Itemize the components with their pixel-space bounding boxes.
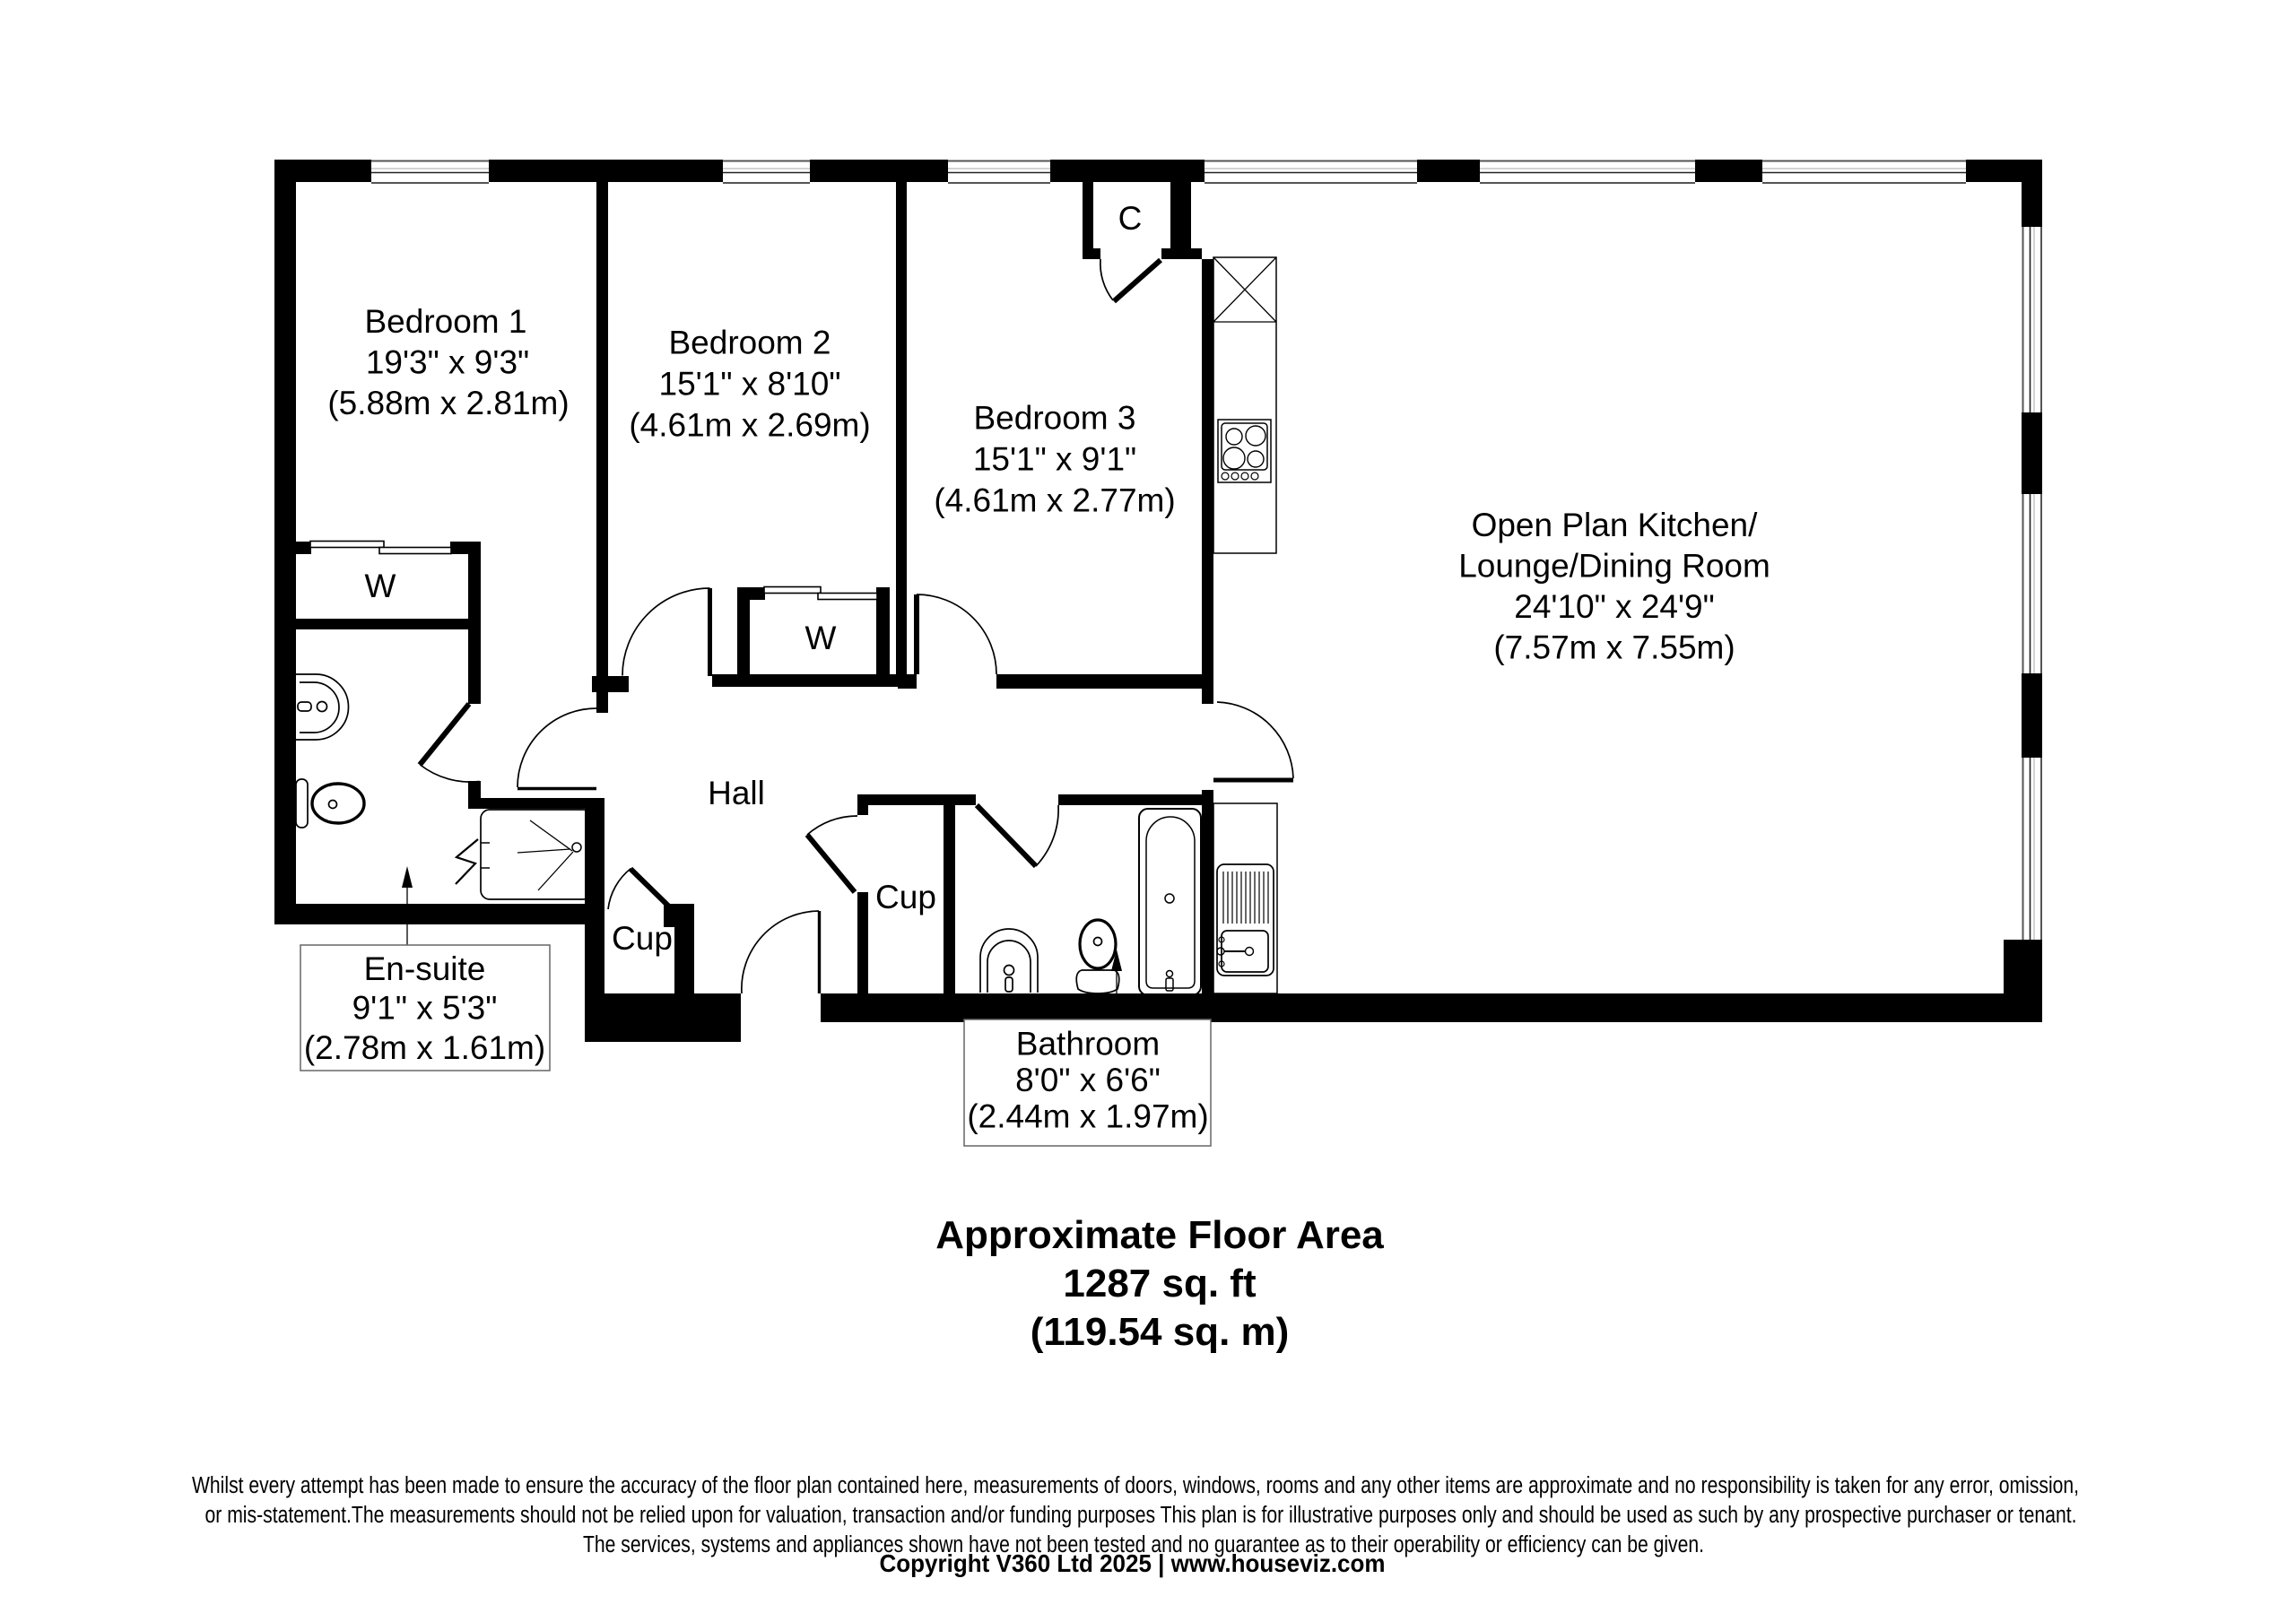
svg-text:15'1" x 9'1": 15'1" x 9'1": [973, 441, 1136, 478]
svg-text:C: C: [1118, 200, 1143, 237]
svg-text:Open Plan Kitchen/: Open Plan Kitchen/: [1472, 507, 1759, 543]
svg-text:or mis-statement.The measureme: or mis-statement.The measurements should…: [205, 1503, 2077, 1528]
svg-text:Whilst every attempt has been: Whilst every attempt has been made to en…: [192, 1473, 2079, 1498]
svg-text:Bedroom 3: Bedroom 3: [974, 400, 1136, 437]
svg-text:9'1" x 5'3": 9'1" x 5'3": [352, 990, 498, 1027]
svg-text:W: W: [805, 620, 837, 656]
svg-text:15'1" x 8'10": 15'1" x 8'10": [659, 366, 841, 403]
svg-text:(7.57m x 7.55m): (7.57m x 7.55m): [1493, 629, 1735, 666]
svg-text:Cup: Cup: [875, 879, 936, 915]
svg-text:Bathroom: Bathroom: [1016, 1026, 1160, 1063]
svg-text:Lounge/Dining Room: Lounge/Dining Room: [1458, 548, 1770, 585]
svg-text:Bedroom 1: Bedroom 1: [365, 303, 527, 340]
svg-text:19'3" x 9'3": 19'3" x 9'3": [366, 344, 529, 381]
svg-text:(4.61m x 2.69m): (4.61m x 2.69m): [629, 407, 870, 444]
svg-text:8'0" x 6'6": 8'0" x 6'6": [1015, 1062, 1161, 1098]
svg-text:(4.61m x 2.77m): (4.61m x 2.77m): [934, 482, 1175, 519]
svg-text:Approximate Floor Area: Approximate Floor Area: [935, 1213, 1384, 1257]
svg-text:1287 sq. ft: 1287 sq. ft: [1063, 1262, 1257, 1305]
svg-text:Cup: Cup: [612, 920, 673, 957]
svg-text:(5.88m x 2.81m): (5.88m x 2.81m): [327, 385, 569, 421]
svg-text:(2.44m x 1.97m): (2.44m x 1.97m): [967, 1098, 1208, 1135]
svg-text:Bedroom 2: Bedroom 2: [669, 325, 831, 361]
svg-text:W: W: [365, 568, 396, 604]
svg-text:(2.78m x 1.61m): (2.78m x 1.61m): [304, 1029, 545, 1066]
svg-text:Copyright V360 Ltd 2025 | www.: Copyright V360 Ltd 2025 | www.houseviz.c…: [880, 1549, 1386, 1577]
svg-text:Hall: Hall: [708, 775, 765, 811]
svg-text:(119.54 sq. m): (119.54 sq. m): [1031, 1310, 1290, 1354]
svg-text:24'10" x 24'9": 24'10" x 24'9": [1514, 588, 1715, 625]
svg-text:En-suite: En-suite: [364, 950, 486, 987]
